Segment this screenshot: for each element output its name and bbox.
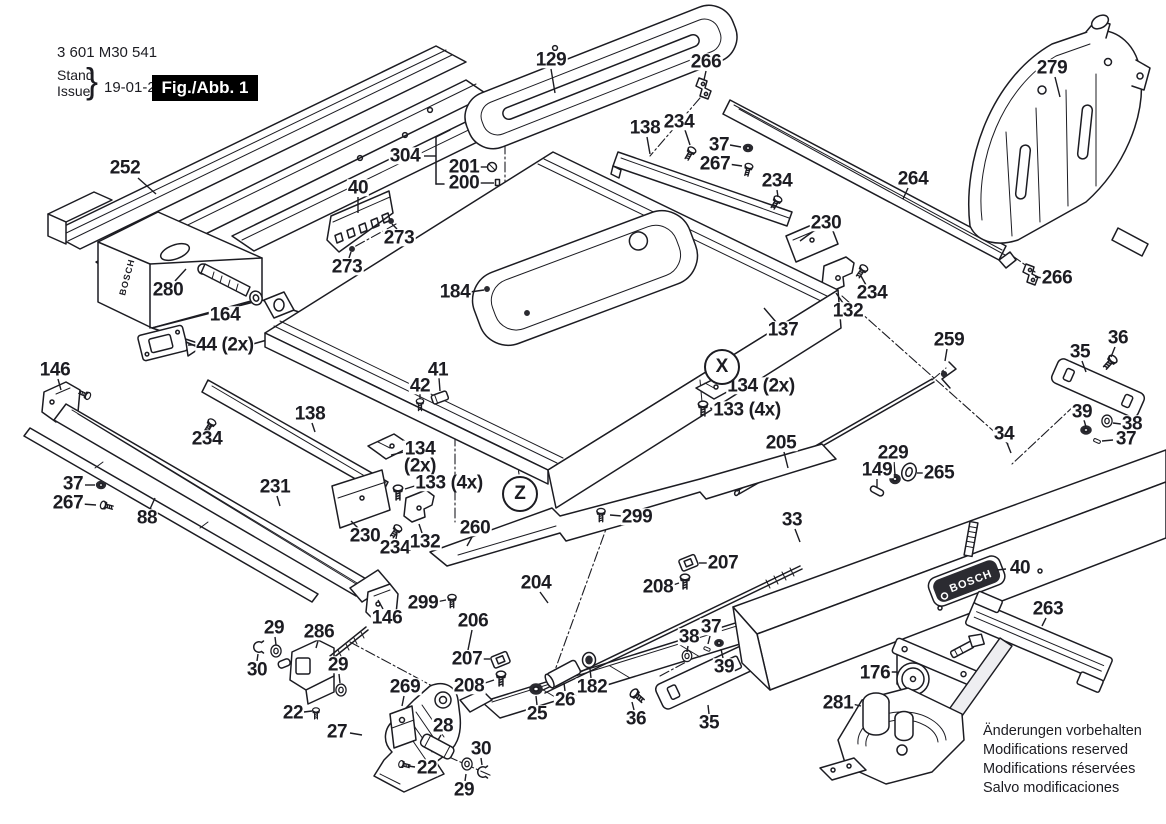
- part-callout-299: 299: [407, 594, 440, 611]
- part-callout-132: 132: [409, 533, 442, 550]
- part-callout-40: 40: [1009, 559, 1031, 576]
- part-callout-207: 207: [707, 554, 740, 571]
- part-callout-30: 30: [470, 740, 492, 757]
- part-callout-134-2x: 134 (2x): [726, 377, 796, 394]
- part-callout-204: 204: [520, 574, 553, 591]
- part-callout-230: 230: [810, 214, 843, 231]
- part-callout-269: 269: [389, 678, 422, 695]
- part-callout-205: 205: [765, 434, 798, 451]
- part-callout-35: 35: [698, 714, 720, 731]
- part-callout-279: 279: [1036, 59, 1069, 76]
- part-callout-280: 280: [152, 281, 185, 298]
- part-callout-263: 263: [1032, 600, 1065, 617]
- part-callout-146: 146: [371, 609, 404, 626]
- part-callout-164: 164: [209, 306, 242, 323]
- part-callout-36: 36: [625, 710, 647, 727]
- part-callout-138: 138: [629, 119, 662, 136]
- part-callout-29: 29: [453, 781, 475, 798]
- part-callout-37: 37: [1115, 430, 1137, 447]
- part-callout-259: 259: [933, 331, 966, 348]
- part-callout-266: 266: [1041, 269, 1074, 286]
- part-callout-28: 28: [432, 717, 454, 734]
- part-callout-266: 266: [690, 53, 723, 70]
- part-callout-129: 129: [535, 51, 568, 68]
- part-callout-299: 299: [621, 508, 654, 525]
- part-callout-30: 30: [246, 661, 268, 678]
- part-callout-200: 200: [448, 174, 481, 191]
- part-callout-37: 37: [62, 475, 84, 492]
- part-callout-37: 37: [708, 136, 730, 153]
- part-callout-281: 281: [822, 694, 855, 711]
- part-callout-36: 36: [1107, 329, 1129, 346]
- part-callout-184: 184: [439, 283, 472, 300]
- part-callout-182: 182: [576, 678, 609, 695]
- part-callout-133-4x: 133 (4x): [414, 474, 484, 491]
- part-callout-25: 25: [526, 705, 548, 722]
- part-callout-35: 35: [1069, 343, 1091, 360]
- part-callout-234: 234: [191, 430, 224, 447]
- part-callout-286: 286: [303, 623, 336, 640]
- part-callout-304: 304: [389, 147, 422, 164]
- part-callout-132: 132: [832, 302, 865, 319]
- part-callout-88: 88: [136, 509, 158, 526]
- part-callout-260: 260: [459, 519, 492, 536]
- part-callout-39: 39: [1071, 403, 1093, 420]
- part-callout-267: 267: [699, 155, 732, 172]
- part-callout-39: 39: [713, 658, 735, 675]
- part-callout-33: 33: [781, 511, 803, 528]
- part-callout-234: 234: [379, 539, 412, 556]
- part-callout-37: 37: [700, 618, 722, 635]
- section-marker-z: Z: [502, 476, 538, 512]
- part-callout-138: 138: [294, 405, 327, 422]
- part-callout-26: 26: [554, 691, 576, 708]
- part-callout-206: 206: [457, 612, 490, 629]
- callout-layer: 2523042012001292661382343726723426427926…: [0, 0, 1166, 824]
- part-callout-41: 41: [427, 361, 449, 378]
- part-callout-234: 234: [761, 172, 794, 189]
- parts-diagram-page: BOSCH: [0, 0, 1166, 824]
- part-callout-264: 264: [897, 170, 930, 187]
- part-callout-230: 230: [349, 527, 382, 544]
- part-callout-208: 208: [642, 578, 675, 595]
- part-callout-22: 22: [416, 759, 438, 776]
- part-callout-34: 34: [993, 425, 1015, 442]
- part-callout-29: 29: [327, 656, 349, 673]
- part-callout-267: 267: [52, 494, 85, 511]
- part-callout-176: 176: [859, 664, 892, 681]
- part-callout-208: 208: [453, 677, 486, 694]
- part-callout-273: 273: [331, 258, 364, 275]
- part-callout-273: 273: [383, 229, 416, 246]
- part-callout-146: 146: [39, 361, 72, 378]
- part-callout-38: 38: [678, 628, 700, 645]
- part-callout-29: 29: [263, 619, 285, 636]
- part-callout-234: 234: [856, 284, 889, 301]
- section-marker-x: X: [704, 349, 740, 385]
- part-callout-234: 234: [663, 113, 696, 130]
- part-callout-133-4x: 133 (4x): [712, 401, 782, 418]
- part-callout-134-2x: 134 (2x): [403, 441, 437, 476]
- part-callout-22: 22: [282, 704, 304, 721]
- part-callout-252: 252: [109, 159, 142, 176]
- part-callout-44-2x: 44 (2x): [195, 336, 254, 353]
- part-callout-149: 149: [861, 461, 894, 478]
- part-callout-137: 137: [767, 321, 800, 338]
- part-callout-40: 40: [347, 179, 369, 196]
- part-callout-265: 265: [923, 464, 956, 481]
- part-callout-27: 27: [326, 723, 348, 740]
- part-callout-207: 207: [451, 650, 484, 667]
- part-callout-231: 231: [259, 478, 292, 495]
